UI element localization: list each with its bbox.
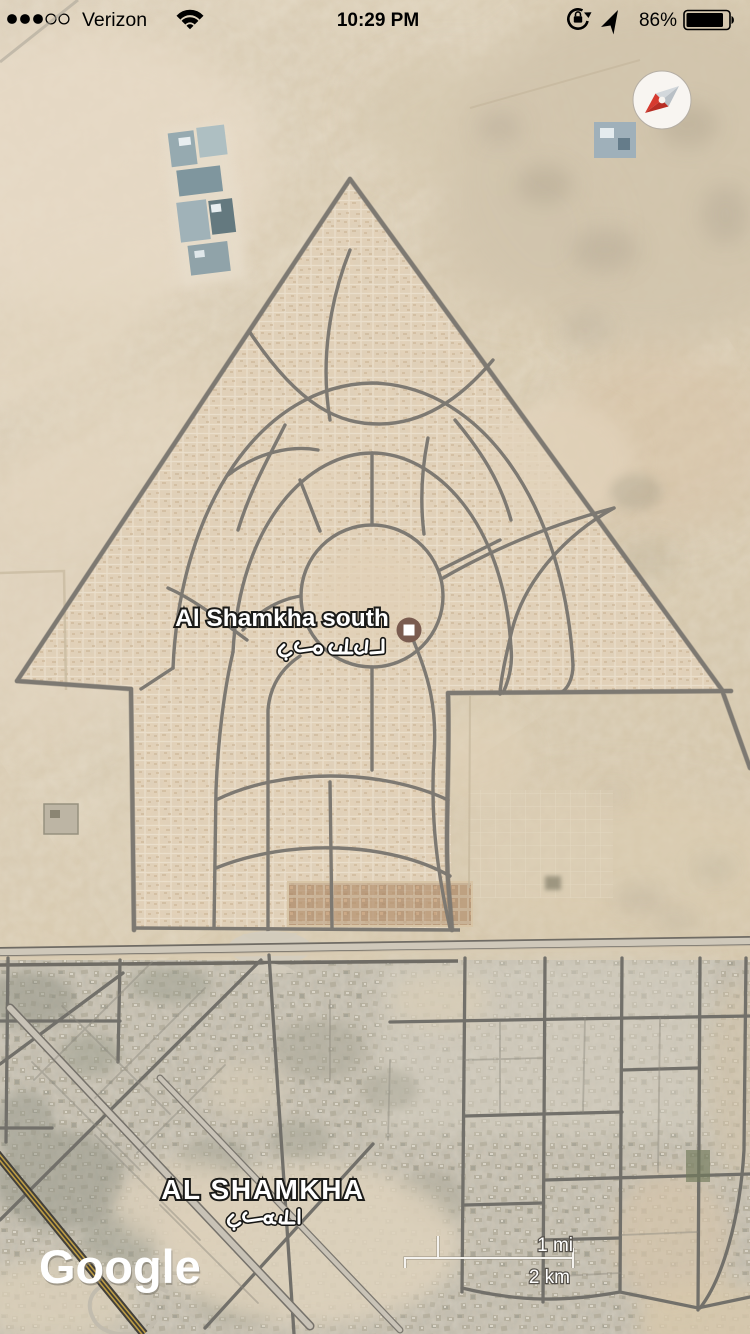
svg-text:10:29 PM: 10:29 PM: [337, 10, 419, 31]
svg-text:Al Shamkha south: Al Shamkha south: [175, 605, 389, 632]
svg-text:1 mi: 1 mi: [537, 1235, 573, 1256]
svg-text:86%: 86%: [639, 10, 677, 31]
svg-text:2 km: 2 km: [529, 1267, 570, 1288]
svg-text:Google: Google: [39, 1240, 201, 1293]
svg-text:AL SHAMKHA: AL SHAMKHA: [161, 1174, 365, 1205]
svg-text:Verizon: Verizon: [82, 9, 147, 31]
